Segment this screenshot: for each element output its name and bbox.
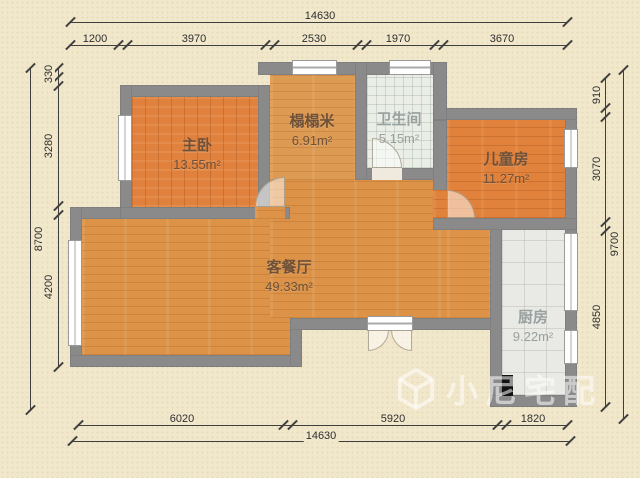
dim-label: 1200 — [81, 33, 109, 45]
kitchen-flue — [502, 375, 513, 396]
room-label-kids: 儿童房 11.27m² — [483, 150, 530, 188]
wall — [490, 395, 577, 407]
window-kitchen-right2 — [564, 330, 578, 364]
dim-label-right-total: 9700 — [609, 230, 621, 258]
wall — [120, 85, 270, 97]
watermark-cube-icon — [394, 367, 438, 411]
door-opening-bathroom — [372, 168, 402, 180]
room-name: 榻榻米 — [289, 112, 334, 132]
dim-label: 6020 — [168, 413, 196, 425]
dim-label: 1970 — [384, 33, 412, 45]
room-label-tatami: 榻榻米 6.91m² — [289, 112, 334, 150]
dim-label: 3280 — [43, 132, 55, 160]
dim-label: 4200 — [43, 273, 55, 301]
dim-label-bottom-total: 14630 — [304, 430, 339, 442]
dim-label: 3970 — [180, 33, 208, 45]
dim-line — [605, 78, 606, 407]
room-area: 9.22m² — [513, 328, 553, 346]
french-door-arc-left — [368, 330, 389, 351]
french-door-living-south — [367, 316, 413, 331]
window-tatami-top — [292, 60, 337, 75]
dim-label: 5920 — [379, 413, 407, 425]
door-opening-master — [255, 207, 285, 219]
dim-line — [70, 22, 567, 23]
door-opening-kids — [433, 190, 447, 218]
room-area: 13.55m² — [173, 156, 221, 174]
dim-line — [30, 68, 31, 410]
wall — [355, 62, 367, 180]
room-label-kitchen: 厨房 9.22m² — [513, 308, 553, 346]
room-name: 厨房 — [513, 308, 553, 328]
wall — [433, 62, 447, 120]
window-bathroom-top — [389, 60, 431, 75]
dim-label: 3070 — [591, 155, 603, 183]
french-door-arc-right — [391, 330, 412, 351]
room-area: 49.33m² — [265, 278, 313, 296]
window-master-left — [118, 115, 132, 181]
room-label-living: 客餐厅 49.33m² — [265, 258, 313, 296]
dim-label: 4850 — [591, 303, 603, 331]
room-living-dining-floor[interactable] — [82, 219, 290, 355]
wall — [490, 228, 502, 407]
dim-label-top-total: 14630 — [303, 10, 338, 22]
dim-label: 1820 — [519, 413, 547, 425]
dim-line — [623, 70, 624, 419]
room-area: 6.91m² — [289, 132, 334, 150]
dim-label: 2530 — [300, 33, 328, 45]
dim-label: 3670 — [488, 33, 516, 45]
dim-line — [58, 68, 59, 367]
room-name: 主卧 — [173, 136, 221, 156]
dim-line — [70, 45, 567, 46]
room-area: 11.27m² — [483, 170, 530, 188]
window-living-left — [68, 240, 82, 346]
room-living-dining-floor[interactable] — [447, 230, 490, 318]
room-label-master: 主卧 13.55m² — [173, 136, 221, 174]
window-kitchen-right — [564, 233, 578, 311]
wall — [433, 108, 577, 120]
dim-label-left-total: 8700 — [33, 225, 45, 253]
room-label-bathroom: 卫生间 5.15m² — [376, 110, 421, 148]
room-area: 5.15m² — [376, 130, 421, 148]
room-name: 客餐厅 — [265, 258, 313, 278]
window-kids-right — [564, 129, 578, 168]
wall — [433, 218, 577, 230]
room-name: 儿童房 — [483, 150, 530, 170]
room-name: 卫生间 — [376, 110, 421, 130]
dim-label: 910 — [591, 84, 603, 106]
dim-label: 330 — [43, 63, 55, 85]
room-living-dining-floor[interactable] — [270, 180, 447, 318]
floor-plan-canvas: 主卧 13.55m² 榻榻米 6.91m² 卫生间 5.15m² 儿童房 11.… — [0, 0, 640, 478]
wall — [70, 355, 302, 367]
